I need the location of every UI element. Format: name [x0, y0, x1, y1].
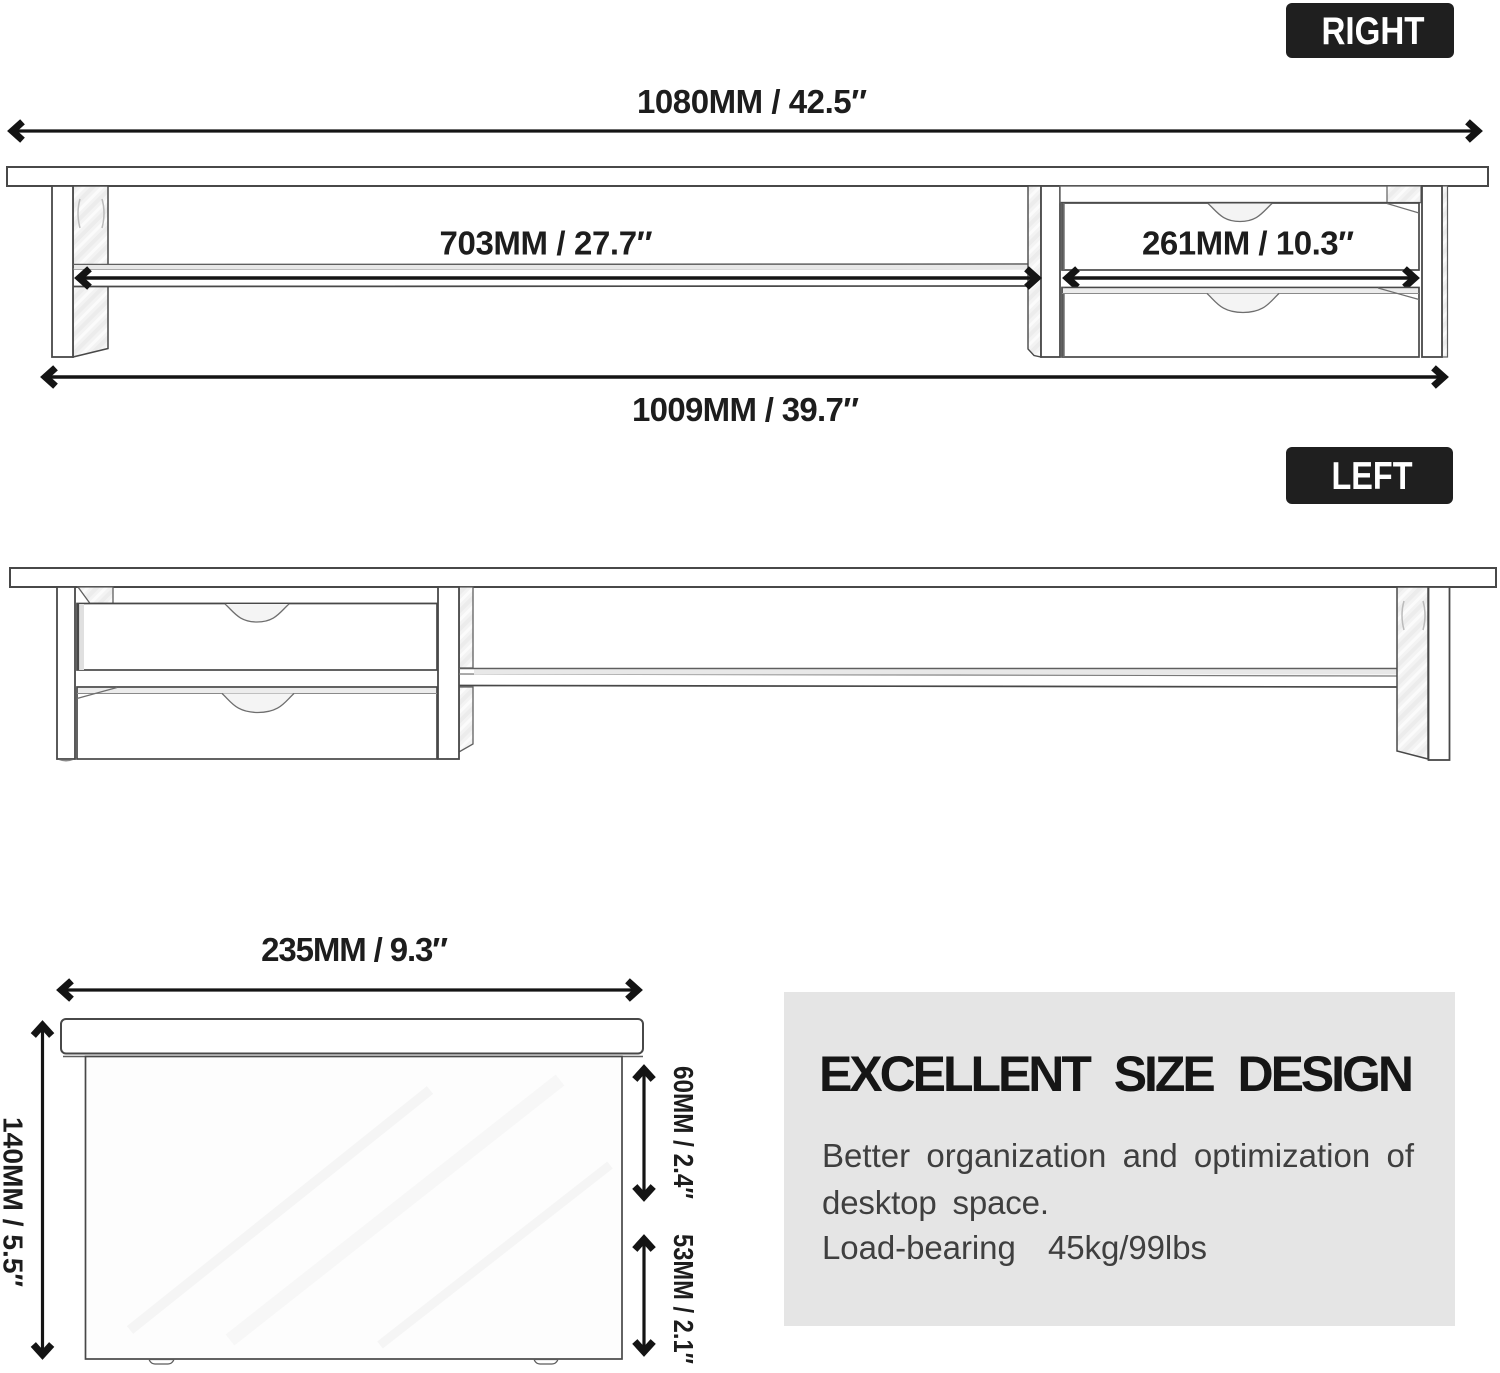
svg-text:desktop space.: desktop space.: [822, 1184, 1049, 1221]
svg-text:EXCELLENT SIZE DESIGN: EXCELLENT SIZE DESIGN: [819, 1046, 1414, 1102]
svg-text:1080MM / 42.5″: 1080MM / 42.5″: [637, 83, 867, 120]
svg-text:LEFT: LEFT: [1332, 455, 1413, 498]
svg-text:140MM / 5.5″: 140MM / 5.5″: [0, 1117, 29, 1287]
svg-text:703MM / 27.7″: 703MM / 27.7″: [440, 225, 653, 262]
svg-text:1009MM / 39.7″: 1009MM / 39.7″: [632, 391, 859, 428]
svg-text:261MM / 10.3″: 261MM / 10.3″: [1142, 225, 1354, 262]
svg-text:60MM / 2.4″: 60MM / 2.4″: [668, 1066, 699, 1199]
svg-text:Better organization and optimi: Better organization and optimization of: [822, 1137, 1415, 1174]
svg-text:RIGHT: RIGHT: [1322, 10, 1425, 53]
svg-text:53MM / 2.1″: 53MM / 2.1″: [668, 1234, 699, 1364]
svg-text:Load-bearing 45kg/99lbs: Load-bearing 45kg/99lbs: [822, 1229, 1207, 1266]
svg-text:235MM / 9.3″: 235MM / 9.3″: [261, 931, 448, 968]
